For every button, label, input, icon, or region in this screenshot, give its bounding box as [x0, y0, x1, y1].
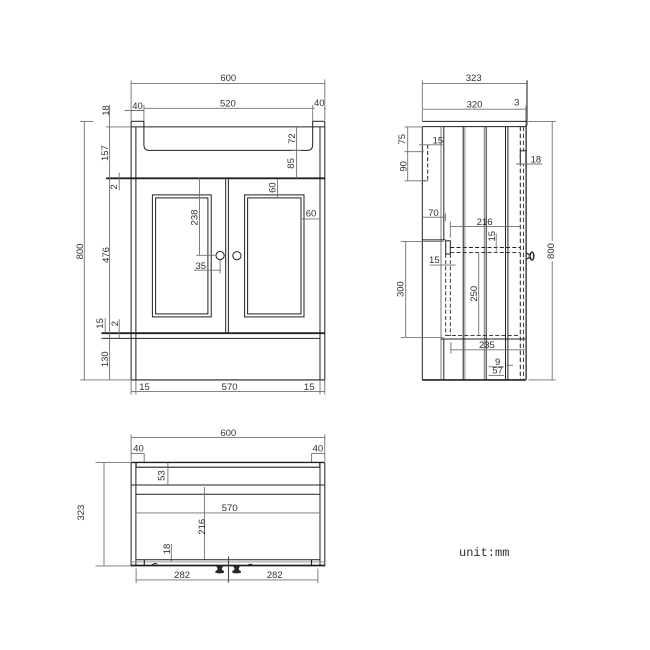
- svg-text:75: 75: [397, 134, 408, 145]
- svg-text:2: 2: [110, 321, 121, 326]
- svg-text:320: 320: [467, 100, 483, 111]
- svg-text:unit:mm: unit:mm: [459, 546, 509, 560]
- svg-text:800: 800: [75, 244, 86, 260]
- svg-text:53: 53: [157, 470, 168, 481]
- svg-text:85: 85: [286, 158, 297, 169]
- svg-text:323: 323: [466, 73, 482, 84]
- svg-text:15: 15: [95, 318, 106, 329]
- svg-text:520: 520: [220, 99, 236, 110]
- svg-text:60: 60: [267, 182, 278, 193]
- svg-text:570: 570: [222, 382, 238, 393]
- svg-text:15: 15: [304, 382, 315, 393]
- svg-text:2: 2: [109, 184, 120, 189]
- svg-text:250: 250: [469, 286, 480, 302]
- svg-text:238: 238: [190, 210, 201, 226]
- svg-text:70: 70: [428, 208, 439, 219]
- svg-text:15: 15: [139, 382, 150, 393]
- svg-text:72: 72: [287, 133, 298, 144]
- svg-text:57: 57: [492, 366, 503, 377]
- svg-text:40: 40: [314, 98, 325, 109]
- svg-text:235: 235: [479, 340, 495, 351]
- svg-text:3: 3: [514, 98, 519, 109]
- svg-text:15: 15: [429, 255, 440, 266]
- svg-text:800: 800: [546, 243, 557, 259]
- svg-text:40: 40: [132, 101, 143, 112]
- svg-text:300: 300: [396, 281, 407, 297]
- svg-text:600: 600: [220, 73, 236, 84]
- svg-text:60: 60: [306, 208, 317, 219]
- svg-text:216: 216: [477, 217, 493, 228]
- svg-text:18: 18: [162, 544, 173, 555]
- svg-text:157: 157: [100, 145, 111, 161]
- svg-text:282: 282: [267, 570, 283, 581]
- svg-text:476: 476: [101, 247, 112, 263]
- svg-text:15: 15: [433, 135, 444, 146]
- svg-text:282: 282: [174, 570, 190, 581]
- svg-text:15: 15: [487, 231, 498, 242]
- svg-text:216: 216: [197, 519, 208, 535]
- svg-text:90: 90: [398, 161, 409, 172]
- svg-text:40: 40: [313, 444, 324, 455]
- svg-text:323: 323: [76, 505, 87, 521]
- svg-text:570: 570: [222, 503, 238, 514]
- svg-text:130: 130: [100, 351, 111, 367]
- svg-text:18: 18: [101, 105, 112, 116]
- svg-text:600: 600: [220, 428, 236, 439]
- svg-text:18: 18: [531, 155, 542, 166]
- svg-text:40: 40: [133, 444, 144, 455]
- svg-text:35: 35: [196, 261, 207, 272]
